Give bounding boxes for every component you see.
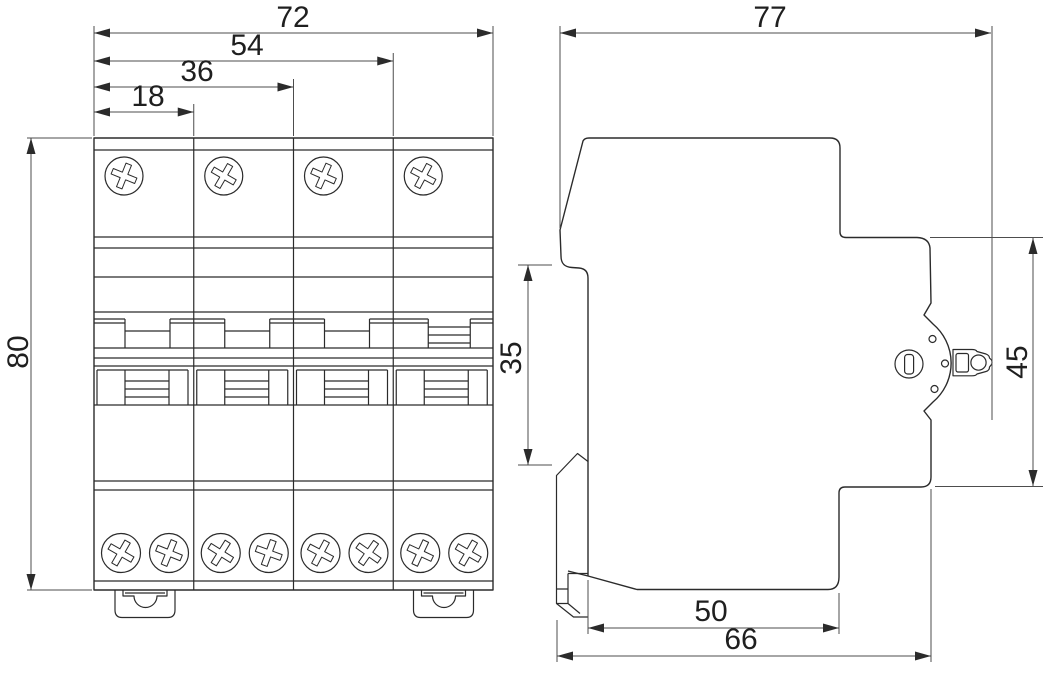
dimension-height: 80 bbox=[2, 138, 92, 590]
dimension-label: 35 bbox=[495, 341, 528, 374]
dimension-label: 54 bbox=[230, 29, 263, 62]
screw-icon bbox=[401, 534, 440, 573]
toggle-handle bbox=[396, 370, 487, 405]
dimension-label: 36 bbox=[180, 55, 213, 88]
toggle-handle bbox=[97, 370, 188, 405]
technical-drawing: 72 54 36 18 80 bbox=[0, 0, 1057, 678]
dimension-label: 77 bbox=[753, 1, 786, 34]
din-clip bbox=[115, 590, 175, 618]
drawing-canvas: 72 54 36 18 80 bbox=[0, 0, 1057, 678]
dimension-base-depth: 50 bbox=[588, 580, 839, 634]
side-view bbox=[557, 138, 993, 617]
neutral-pole-slot bbox=[393, 319, 493, 348]
din-latch bbox=[557, 454, 589, 618]
dimension-label: 50 bbox=[694, 595, 727, 628]
rivet-icon bbox=[929, 336, 936, 343]
front-view bbox=[94, 138, 493, 618]
dimension-label: 45 bbox=[1001, 345, 1034, 378]
screw-icon bbox=[349, 534, 388, 573]
screw-icon bbox=[105, 157, 143, 195]
rivet-icon bbox=[942, 360, 949, 367]
screw-icon bbox=[205, 157, 243, 195]
dimension-label: 66 bbox=[724, 623, 757, 656]
dimension-body-depth: 66 bbox=[557, 489, 931, 662]
screw-icon bbox=[449, 534, 488, 573]
screw-icon bbox=[249, 534, 288, 573]
screw-icon bbox=[404, 157, 442, 195]
dimension-label: 18 bbox=[131, 80, 164, 113]
toggle-mechanism bbox=[895, 336, 992, 393]
dimension-total-depth: 77 bbox=[560, 1, 992, 420]
pivot-slot bbox=[905, 355, 914, 375]
din-clip bbox=[414, 590, 474, 618]
screw-icon bbox=[150, 534, 189, 573]
dimension-din-rail-height: 35 bbox=[495, 265, 552, 465]
side-body-outline bbox=[560, 138, 951, 590]
toggle-handles bbox=[97, 370, 487, 405]
top-screws bbox=[105, 157, 442, 195]
screw-icon bbox=[305, 157, 343, 195]
toggle-handle bbox=[297, 370, 388, 405]
pole-dividers bbox=[194, 138, 394, 590]
toggle-lever bbox=[953, 350, 992, 376]
screw-icon bbox=[102, 534, 141, 573]
toggle-handle bbox=[197, 370, 288, 405]
dimension-label: 72 bbox=[276, 1, 309, 34]
screw-icon bbox=[201, 534, 240, 573]
dimension-label: 80 bbox=[2, 335, 35, 368]
screw-icon bbox=[301, 534, 340, 573]
terminal-screws bbox=[102, 534, 488, 573]
rivet-icon bbox=[931, 386, 938, 393]
